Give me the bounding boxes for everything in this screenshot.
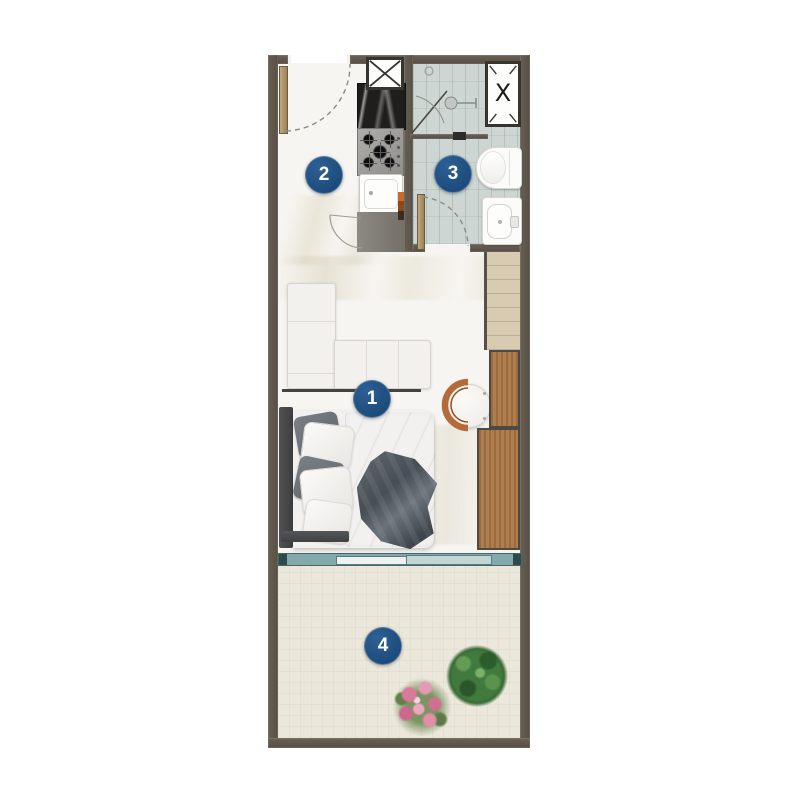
wall-left	[268, 55, 278, 748]
kitchen-faucet-icon	[369, 191, 373, 195]
hob-knob	[397, 164, 400, 167]
door-jamb	[288, 55, 291, 64]
sliding-door-panel	[406, 555, 492, 565]
washbasin	[482, 197, 522, 245]
washbasin-bowl	[487, 204, 512, 239]
marker-number: 1	[367, 388, 378, 410]
kitchen-counter-base	[357, 212, 404, 252]
entrance-door	[279, 66, 288, 134]
bed-frame	[281, 531, 349, 542]
bathroom-door	[417, 194, 425, 250]
marker-bathroom[interactable]: 3	[434, 155, 472, 193]
hob-burner-icon	[363, 157, 374, 168]
kitchen-sink	[359, 174, 403, 214]
marker-number: 2	[319, 164, 330, 186]
wardrobe-lower	[477, 428, 520, 550]
wall-bathroom-bottom	[470, 244, 520, 252]
floor-plan-canvas: X	[0, 0, 800, 800]
wardrobe-upper	[489, 350, 520, 428]
console-shelf	[282, 389, 421, 392]
entry-wood-floor	[484, 246, 523, 350]
round-table	[447, 384, 491, 428]
toilet-bowl	[480, 151, 506, 184]
sliding-door-track-end	[513, 554, 521, 565]
hob-burner-icon	[373, 145, 387, 159]
shaft-x-glyph: X	[488, 79, 518, 107]
marker-kitchen-entry[interactable]: 2	[305, 156, 343, 194]
marker-number: 3	[448, 163, 459, 185]
door-jamb	[468, 244, 470, 252]
wall-bottom	[268, 738, 530, 748]
hob-knob	[397, 137, 400, 140]
washbasin-faucet-icon	[510, 216, 519, 228]
toilet-tank-seam	[509, 150, 510, 186]
gas-hob	[357, 128, 404, 176]
door-jamb	[425, 244, 427, 252]
kitchen-accessories	[398, 192, 404, 220]
bed-headboard	[279, 407, 293, 548]
duct-shaft-x-box-icon: X	[485, 61, 521, 127]
shower-partition-handle	[453, 132, 466, 140]
sofa-seats	[334, 340, 431, 389]
shower-partition	[410, 134, 488, 139]
hob-burner-icon	[363, 134, 374, 145]
cross-lines-icon	[369, 60, 401, 87]
hob-knob	[397, 155, 400, 158]
door-jamb	[347, 55, 350, 64]
hob-burner-icon	[384, 134, 395, 145]
sofa-chaise	[287, 283, 336, 389]
marker-number: 4	[378, 635, 389, 657]
marker-balcony[interactable]: 4	[364, 627, 402, 665]
sliding-door-track-end	[279, 554, 287, 565]
flower-plant	[390, 672, 454, 736]
apartment-floor-plan: X	[0, 0, 800, 800]
tree-plant	[446, 645, 508, 707]
hob-burner-icon	[384, 157, 395, 168]
toilet	[476, 147, 522, 189]
marker-living-bedroom[interactable]: 1	[353, 380, 391, 418]
hob-knob	[397, 146, 400, 149]
duct-shaft-crossed-box-icon	[366, 57, 404, 90]
